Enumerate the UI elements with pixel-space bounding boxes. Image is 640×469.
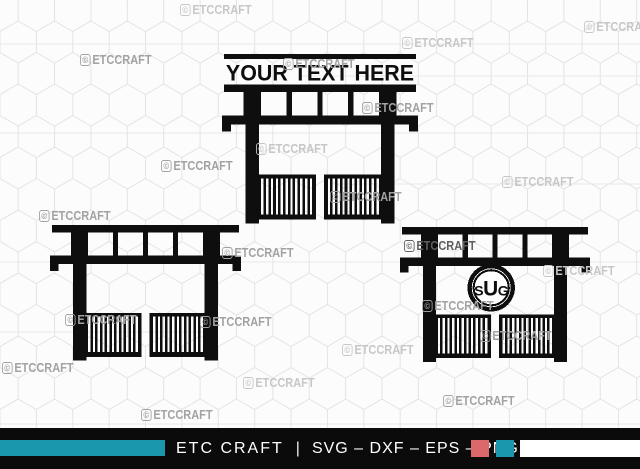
gate-graphic — [50, 225, 241, 361]
brand-name: ETC CRAFT — [176, 440, 284, 458]
design-preview-canvas: YOUR TEXT HERE SUG ©ETCCRAFT©ETCCRAFT©ET… — [0, 0, 640, 469]
color-swatch-2 — [496, 440, 514, 457]
gate-with-text-banner: YOUR TEXT HERE — [222, 54, 418, 224]
footer-accent-bar — [0, 440, 165, 456]
footer-text: ETC CRAFT | SVG – DXF – EPS – PNG — [176, 428, 519, 469]
separator: | — [296, 440, 300, 458]
footer-white-bar — [520, 440, 640, 457]
banner-text: YOUR TEXT HERE — [226, 60, 414, 85]
footer-bar: ETC CRAFT | SVG – DXF – EPS – PNG — [0, 428, 640, 469]
gate-graphic: SUG — [400, 227, 590, 362]
circle-monogram: SUG — [467, 264, 514, 311]
gate-plain — [50, 225, 241, 361]
gate-graphic: YOUR TEXT HERE — [222, 54, 418, 224]
color-swatch-1 — [471, 440, 489, 457]
gate-with-monogram: SUG — [400, 227, 590, 362]
